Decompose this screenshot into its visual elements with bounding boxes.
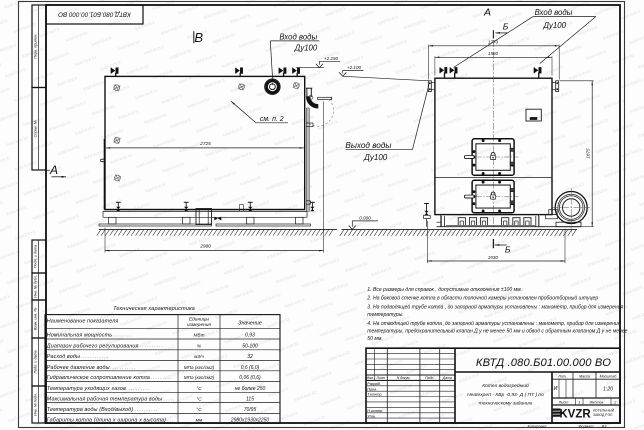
svg-text:Подп.: Подп. [425, 376, 434, 380]
svg-text:2980х1930х2250: 2980х1930х2250 [230, 418, 270, 424]
svg-text:мм: мм [196, 418, 203, 423]
svg-text:Подп. и дата: Подп. и дата [34, 245, 38, 268]
svg-text:Пров.: Пров. [367, 387, 377, 391]
svg-text:0.000: 0.000 [359, 216, 371, 221]
svg-text:Наименование показателя: Наименование показателя [47, 318, 119, 324]
svg-text:Котел водогрейный: Котел водогрейный [482, 382, 529, 389]
svg-text:Изм.: Изм. [367, 376, 374, 380]
svg-text:Температура воды (Вход/выход): Температура воды (Вход/выход) [47, 407, 133, 413]
svg-text:Лист: Лист [558, 401, 569, 405]
svg-text:3. На подводящей трубе котла: 3. На подводящей трубе котла , до запорн… [367, 304, 623, 311]
svg-text:м3/ч: м3/ч [194, 354, 204, 359]
svg-text:Вход воды: Вход воды [535, 8, 573, 17]
svg-text:32: 32 [247, 354, 253, 360]
svg-text:В: В [194, 30, 203, 45]
svg-text:Гидравлическое сопротивление к: Гидравлическое сопротивление котла [47, 375, 150, 381]
svg-text:Вход воды: Вход воды [279, 33, 317, 42]
svg-text:техническому заданию: техническому заданию [479, 400, 533, 406]
svg-text:Лист: Лист [376, 376, 386, 380]
svg-text:Значение: Значение [238, 320, 262, 326]
svg-text:2. На боковой стенке котла в: 2. На боковой стенке котла в области топ… [366, 295, 598, 302]
svg-text:МВт: МВт [194, 333, 205, 338]
svg-text:температуры, предохранительный: температуры, предохранительный клапан Д … [367, 328, 627, 335]
svg-text:Инв. № дубл.: Инв. № дубл. [34, 275, 38, 298]
svg-text:И: И [554, 386, 558, 392]
svg-text:0,93: 0,93 [245, 333, 255, 339]
svg-text:N докум.: N докум. [397, 376, 411, 380]
svg-text:А: А [483, 6, 491, 18]
svg-text:Листов: Листов [589, 401, 604, 405]
svg-text:Утв.: Утв. [367, 414, 376, 418]
svg-text:°С: °С [196, 386, 202, 391]
svg-text:А3: А3 [601, 425, 608, 429]
svg-text:Техническая характеристика: Техническая характеристика [113, 306, 195, 312]
svg-text:1:20: 1:20 [603, 387, 613, 393]
svg-text:Разраб.: Разраб. [367, 382, 381, 386]
svg-text:1930: 1930 [488, 255, 499, 260]
svg-text:2725: 2725 [199, 141, 211, 147]
svg-text:измерения: измерения [187, 323, 211, 328]
svg-text:КВТД .080.Б01.00.000 ВО: КВТД .080.Б01.00.000 ВО [476, 357, 611, 369]
svg-text:Б: Б [503, 21, 509, 31]
svg-text:А: А [49, 163, 58, 177]
svg-text:ЗАВОД РЭП: ЗАВОД РЭП [593, 413, 613, 417]
svg-text:Максимальная рабочая температу: Максимальная рабочая температура воды [47, 397, 162, 403]
svg-text:1: 1 [578, 401, 580, 405]
svg-text:КВТД.080.Б01.00.000 ВО: КВТД.080.Б01.00.000 ВО [58, 10, 131, 17]
svg-text:Температура уходящих газов: Температура уходящих газов [47, 386, 126, 392]
svg-text:Выход воды: Выход воды [345, 141, 391, 150]
svg-text:1. Все размеры для справок ,: 1. Все размеры для справок , допустимые … [367, 287, 522, 293]
svg-text:50 мм.: 50 мм. [367, 336, 382, 342]
svg-text:Масса: Масса [579, 375, 590, 379]
svg-text:Подп. и дата: Подп. и дата [34, 350, 38, 373]
svg-text:°С: °С [196, 407, 202, 412]
svg-text:+2.250: +2.250 [324, 56, 339, 61]
svg-text:МПа (кгс/см2): МПа (кгс/см2) [184, 365, 215, 370]
svg-text:см. п. 2: см. п. 2 [260, 116, 284, 123]
svg-text:Дата: Дата [442, 376, 452, 380]
svg-text:Heatexpert - КВр -0,93- Д ( ПТ: Heatexpert - КВр -0,93- Д ( ПТ ) по [467, 392, 544, 398]
svg-text:Взам. инв. №: Взам. инв. № [34, 308, 38, 331]
svg-text:Справ. №: Справ. № [34, 120, 38, 137]
svg-text:температуры.: температуры. [367, 312, 404, 318]
svg-text:0,6 (6,0): 0,6 (6,0) [241, 365, 260, 371]
svg-text:МПа (кгс/см2): МПа (кгс/см2) [184, 375, 215, 380]
svg-text:Ду100: Ду100 [542, 21, 566, 30]
svg-text:Б: Б [505, 244, 511, 254]
svg-text:Расход воды: Расход воды [47, 354, 80, 360]
svg-text:КОТЕЛЬНЫЙ: КОТЕЛЬНЫЙ [593, 409, 615, 413]
svg-text:Масштаб: Масштаб [600, 375, 618, 379]
svg-text:Ду100: Ду100 [294, 44, 318, 53]
svg-text:Рабочее давление воды: Рабочее давление воды [47, 365, 110, 371]
svg-text:Н.контр.: Н.контр. [367, 409, 383, 413]
svg-text:115: 115 [246, 397, 254, 403]
svg-text:KVZR: KVZR [559, 409, 591, 421]
svg-text:+2.100: +2.100 [347, 65, 362, 70]
svg-text:Перв. примен.: Перв. примен. [34, 34, 38, 59]
svg-text:не более 250: не более 250 [235, 386, 266, 392]
svg-text:Формат: Формат [578, 425, 593, 429]
svg-text:Единицы: Единицы [189, 316, 210, 322]
svg-text:%: % [197, 343, 201, 348]
svg-text:Т.контр.: Т.контр. [367, 393, 382, 397]
svg-text:Диапазон рабочего регулировани: Диапазон рабочего регулирования [46, 343, 139, 349]
svg-text:°С: °С [196, 397, 202, 402]
svg-text:Ду100: Ду100 [363, 153, 388, 162]
svg-text:Инв. № подл.: Инв. № подл. [34, 393, 38, 416]
svg-text:Габариты котла (длина х ширина: Габариты котла (длина х ширина х высота) [47, 418, 166, 424]
svg-text:4. На отводящей трубе котла ,: 4. На отводящей трубе котла ,до запорной… [367, 320, 620, 327]
svg-text:Лит.: Лит. [557, 375, 566, 379]
svg-text:1560: 1560 [488, 51, 499, 56]
svg-text:Копировал: Копировал [528, 425, 548, 429]
svg-text:Номинальная мощность: Номинальная мощность [47, 333, 112, 339]
svg-text:0,06 (0,6): 0,06 (0,6) [239, 375, 261, 381]
svg-text:1875: 1875 [586, 148, 591, 159]
svg-text:70/95: 70/95 [244, 407, 257, 413]
svg-text:50-100: 50-100 [242, 343, 258, 349]
svg-text:2980: 2980 [199, 244, 211, 250]
